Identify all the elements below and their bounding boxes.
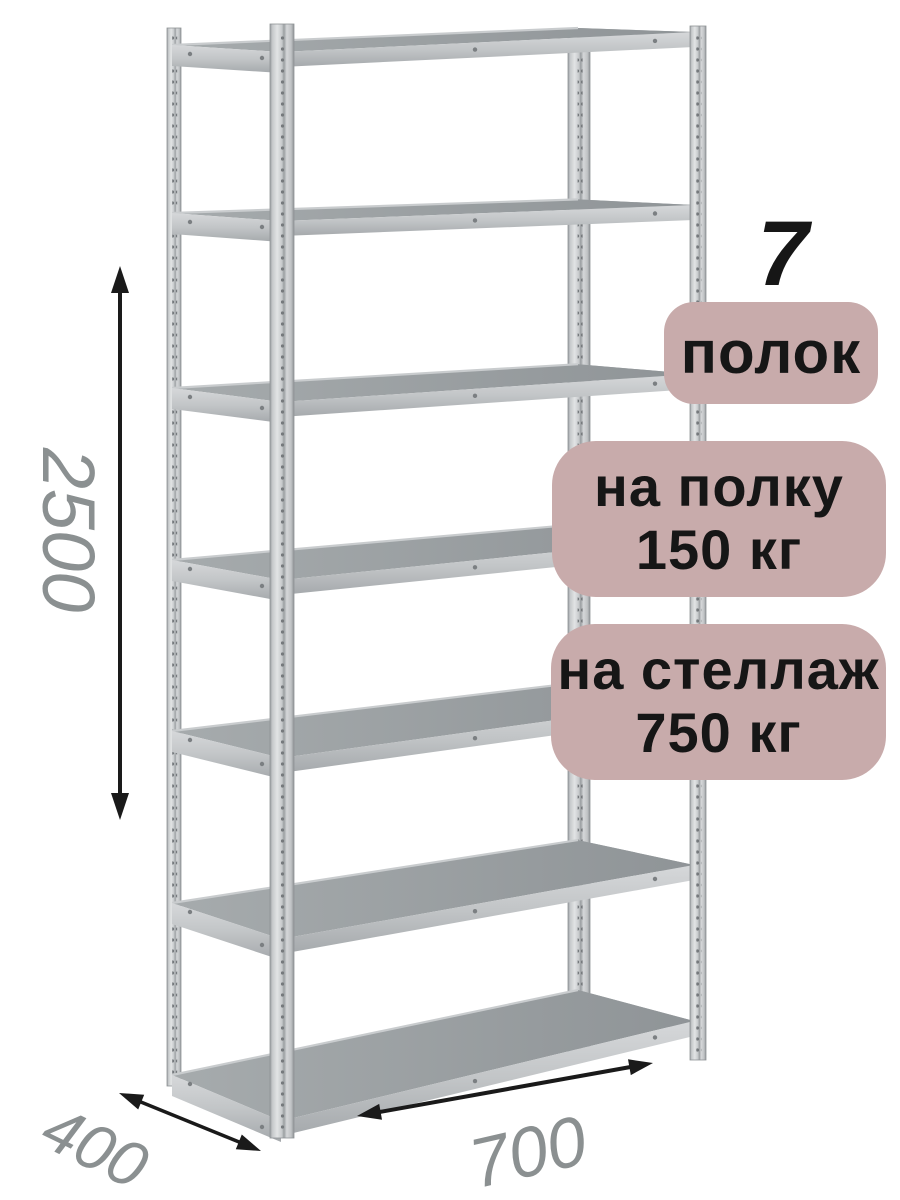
- shelf-count-badge: полок: [664, 302, 878, 404]
- screw-dot: [473, 218, 477, 222]
- shelf: [172, 199, 694, 242]
- shelf: [172, 364, 694, 423]
- screw-dot: [188, 220, 192, 224]
- screw-dot: [188, 52, 192, 56]
- screw-dot: [473, 736, 477, 740]
- screw-dot: [653, 877, 657, 881]
- screw-dot: [653, 1035, 657, 1039]
- screw-dot: [653, 39, 657, 43]
- screw-dot: [473, 565, 477, 569]
- screw-dot: [260, 406, 264, 410]
- screw-dot: [188, 567, 192, 571]
- badge-line: на полку: [594, 456, 844, 519]
- per-shelf-load-badge: на полку 150 кг: [552, 441, 886, 597]
- screw-dot: [260, 56, 264, 60]
- screw-dot: [473, 394, 477, 398]
- screw-dot: [653, 211, 657, 215]
- height-arrow: [111, 266, 129, 820]
- screw-dot: [260, 225, 264, 229]
- screw-dot: [473, 909, 477, 913]
- screw-dot: [473, 47, 477, 51]
- rack-illustration: [0, 0, 900, 1200]
- screw-dot: [473, 1079, 477, 1083]
- screw-dot: [260, 584, 264, 588]
- height-dimension-label: 2500: [29, 380, 107, 680]
- screw-dot: [260, 762, 264, 766]
- per-rack-load-badge: на стеллаж 750 кг: [551, 624, 886, 780]
- screw-dot: [260, 943, 264, 947]
- screw-dot: [653, 381, 657, 385]
- screw-dot: [188, 1082, 192, 1086]
- shelf: [172, 28, 694, 73]
- post: [167, 28, 181, 1086]
- screw-dot: [188, 395, 192, 399]
- badge-line: полок: [681, 319, 861, 386]
- shelf-count-number: 7: [733, 206, 833, 306]
- screw-dot: [188, 738, 192, 742]
- badge-line: на стеллаж: [557, 639, 879, 702]
- badge-line: 750 кг: [635, 702, 801, 765]
- screw-dot: [188, 910, 192, 914]
- screw-dot: [260, 1125, 264, 1129]
- post-perforation: [281, 30, 286, 1132]
- product-image: 2500 400 700 7 полок на полку 150 кг на …: [0, 0, 900, 1200]
- shelf: [172, 840, 694, 960]
- badge-line: 150 кг: [636, 519, 802, 582]
- post: [270, 24, 294, 1138]
